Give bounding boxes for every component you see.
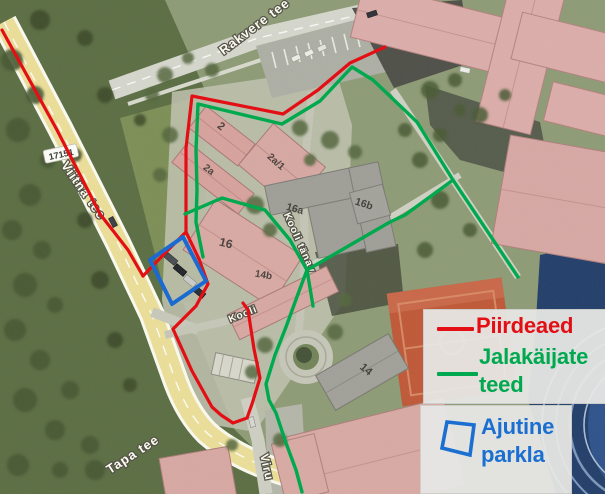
- legend-parking-label: Ajutine parkla: [481, 413, 577, 468]
- fence-line-sample: [437, 327, 474, 331]
- annotated-aerial-map: Rakvere tee Viitna tee Tapa tee Viru Koo…: [0, 0, 605, 494]
- parking-quad-sample: [439, 416, 479, 462]
- legend-box-parking: Ajutine parkla: [420, 405, 572, 494]
- pedestrian-path-line-sample: [437, 372, 478, 376]
- legend-box-lines: Piirdeaed Jalakäijate teed: [423, 309, 605, 404]
- legend-paths-label: Jalakäijate teed: [479, 343, 605, 398]
- legend-fence-label: Piirdeaed: [476, 312, 573, 340]
